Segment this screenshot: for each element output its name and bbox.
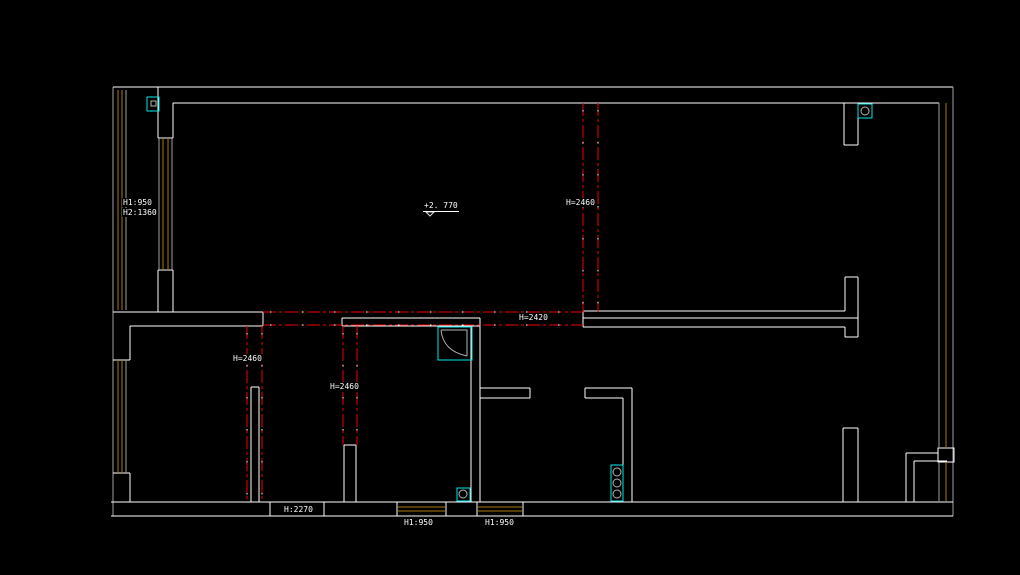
label-bottom-wall-height: H:2270 bbox=[283, 505, 314, 514]
symbol-box-top-left bbox=[147, 97, 159, 111]
label-level-mark: +2. 770 bbox=[423, 201, 459, 212]
fixture-symbols bbox=[147, 97, 872, 501]
label-bottom-window-2: H1:950 bbox=[484, 518, 515, 527]
cad-canvas[interactable]: H1:950 H2:1360 +2. 770 H=2460 H=2420 H=2… bbox=[0, 0, 1020, 575]
symbol-circle-top-right bbox=[858, 104, 872, 118]
label-beam-bedroom: H=2460 bbox=[232, 354, 263, 363]
outer-walls bbox=[111, 87, 953, 516]
beam-lines bbox=[247, 103, 598, 501]
corner-tub-symbol bbox=[438, 327, 472, 360]
level-mark-icon bbox=[426, 212, 434, 216]
label-beam-mid-room: H=2460 bbox=[329, 382, 360, 391]
label-beam-opening: H=2420 bbox=[518, 313, 549, 322]
label-bay-window-h2: H2:1360 bbox=[122, 208, 158, 217]
label-beam-living: H=2460 bbox=[565, 198, 596, 207]
interior-walls bbox=[113, 87, 954, 516]
windows bbox=[118, 90, 946, 511]
label-bottom-window-1: H1:950 bbox=[403, 518, 434, 527]
riser-stack-symbol bbox=[611, 465, 623, 501]
label-bay-window-h1: H1:950 bbox=[122, 198, 153, 207]
floor-plan-drawing bbox=[0, 0, 1020, 575]
floor-drain-symbol bbox=[457, 488, 470, 501]
